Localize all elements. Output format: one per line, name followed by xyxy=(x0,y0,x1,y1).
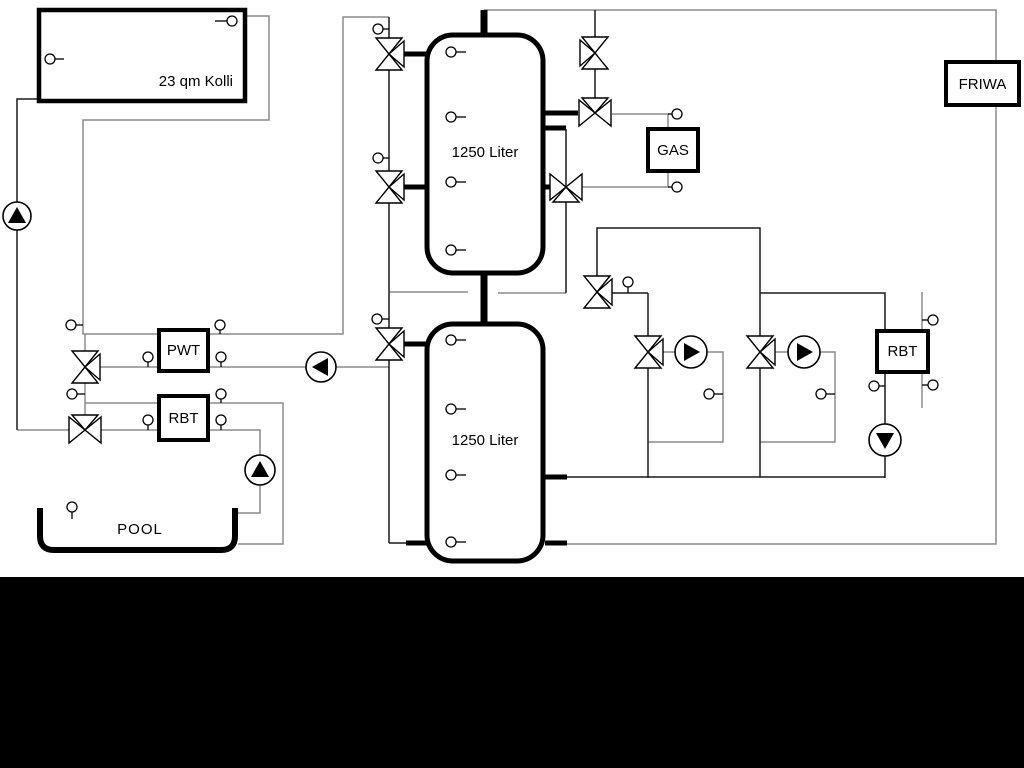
three-way-valve-icon xyxy=(580,37,608,69)
temperature-sensor-icon xyxy=(67,389,85,399)
three-way-valve-icon xyxy=(747,336,775,368)
footer-black-bar xyxy=(0,577,1024,768)
temperature-sensor-icon xyxy=(216,415,226,430)
collector-label: 23 qm Kolli xyxy=(39,74,233,89)
temperature-sensor-icon xyxy=(869,381,885,391)
three-way-valve-icon xyxy=(635,336,663,368)
gas-label: GAS xyxy=(646,143,700,158)
temperature-sensor-icon xyxy=(216,389,226,403)
three-way-valve-icon xyxy=(584,276,612,308)
temperature-sensor-icon xyxy=(216,352,226,367)
temperature-sensor-icon xyxy=(143,352,153,367)
pool-label: POOL xyxy=(85,522,195,537)
three-way-valve-icon xyxy=(69,415,101,443)
temperature-sensor-icon xyxy=(922,315,938,325)
pump-icon-circuit-1 xyxy=(675,336,707,368)
pump-icon-pwt xyxy=(306,352,336,382)
rbt-left-label: RBT xyxy=(157,411,210,426)
pwt-label: PWT xyxy=(157,343,210,358)
hydraulic-schematic: 23 qm Kolli 1250 Liter 1250 Liter PWT RB… xyxy=(0,0,1024,768)
three-way-valve-icon xyxy=(376,328,404,360)
temperature-sensor-icon xyxy=(668,182,682,192)
three-way-valve-icon xyxy=(579,98,611,126)
tank-bottom-label: 1250 Liter xyxy=(427,433,543,448)
rbt-right-label: RBT xyxy=(877,344,928,359)
friwa-label: FRIWA xyxy=(944,77,1021,92)
temperature-sensor-icon xyxy=(215,320,225,334)
temperature-sensor-icon xyxy=(373,153,389,163)
temperature-sensor-icon xyxy=(922,380,938,390)
temperature-sensor-icon xyxy=(704,389,723,399)
pump-icon-solar xyxy=(3,202,31,230)
temperature-sensor-icon xyxy=(66,320,83,330)
pump-icon-circuit-2 xyxy=(788,336,820,368)
temperature-sensor-icon xyxy=(816,389,835,399)
tank-top-label: 1250 Liter xyxy=(427,145,543,160)
three-way-valve-icon xyxy=(376,171,404,203)
three-way-valve-icon xyxy=(376,38,404,70)
temperature-sensor-icon xyxy=(668,109,682,119)
temperature-sensor-icon xyxy=(623,277,633,293)
three-way-valve-icon xyxy=(72,351,100,383)
temperature-sensor-icon xyxy=(373,24,389,34)
temperature-sensor-icon xyxy=(372,314,389,324)
temperature-sensor-icon xyxy=(67,502,77,519)
temperature-sensor-icon xyxy=(143,415,153,430)
pump-icon-rbt-right xyxy=(869,424,901,456)
pump-icon-pool xyxy=(245,455,275,485)
